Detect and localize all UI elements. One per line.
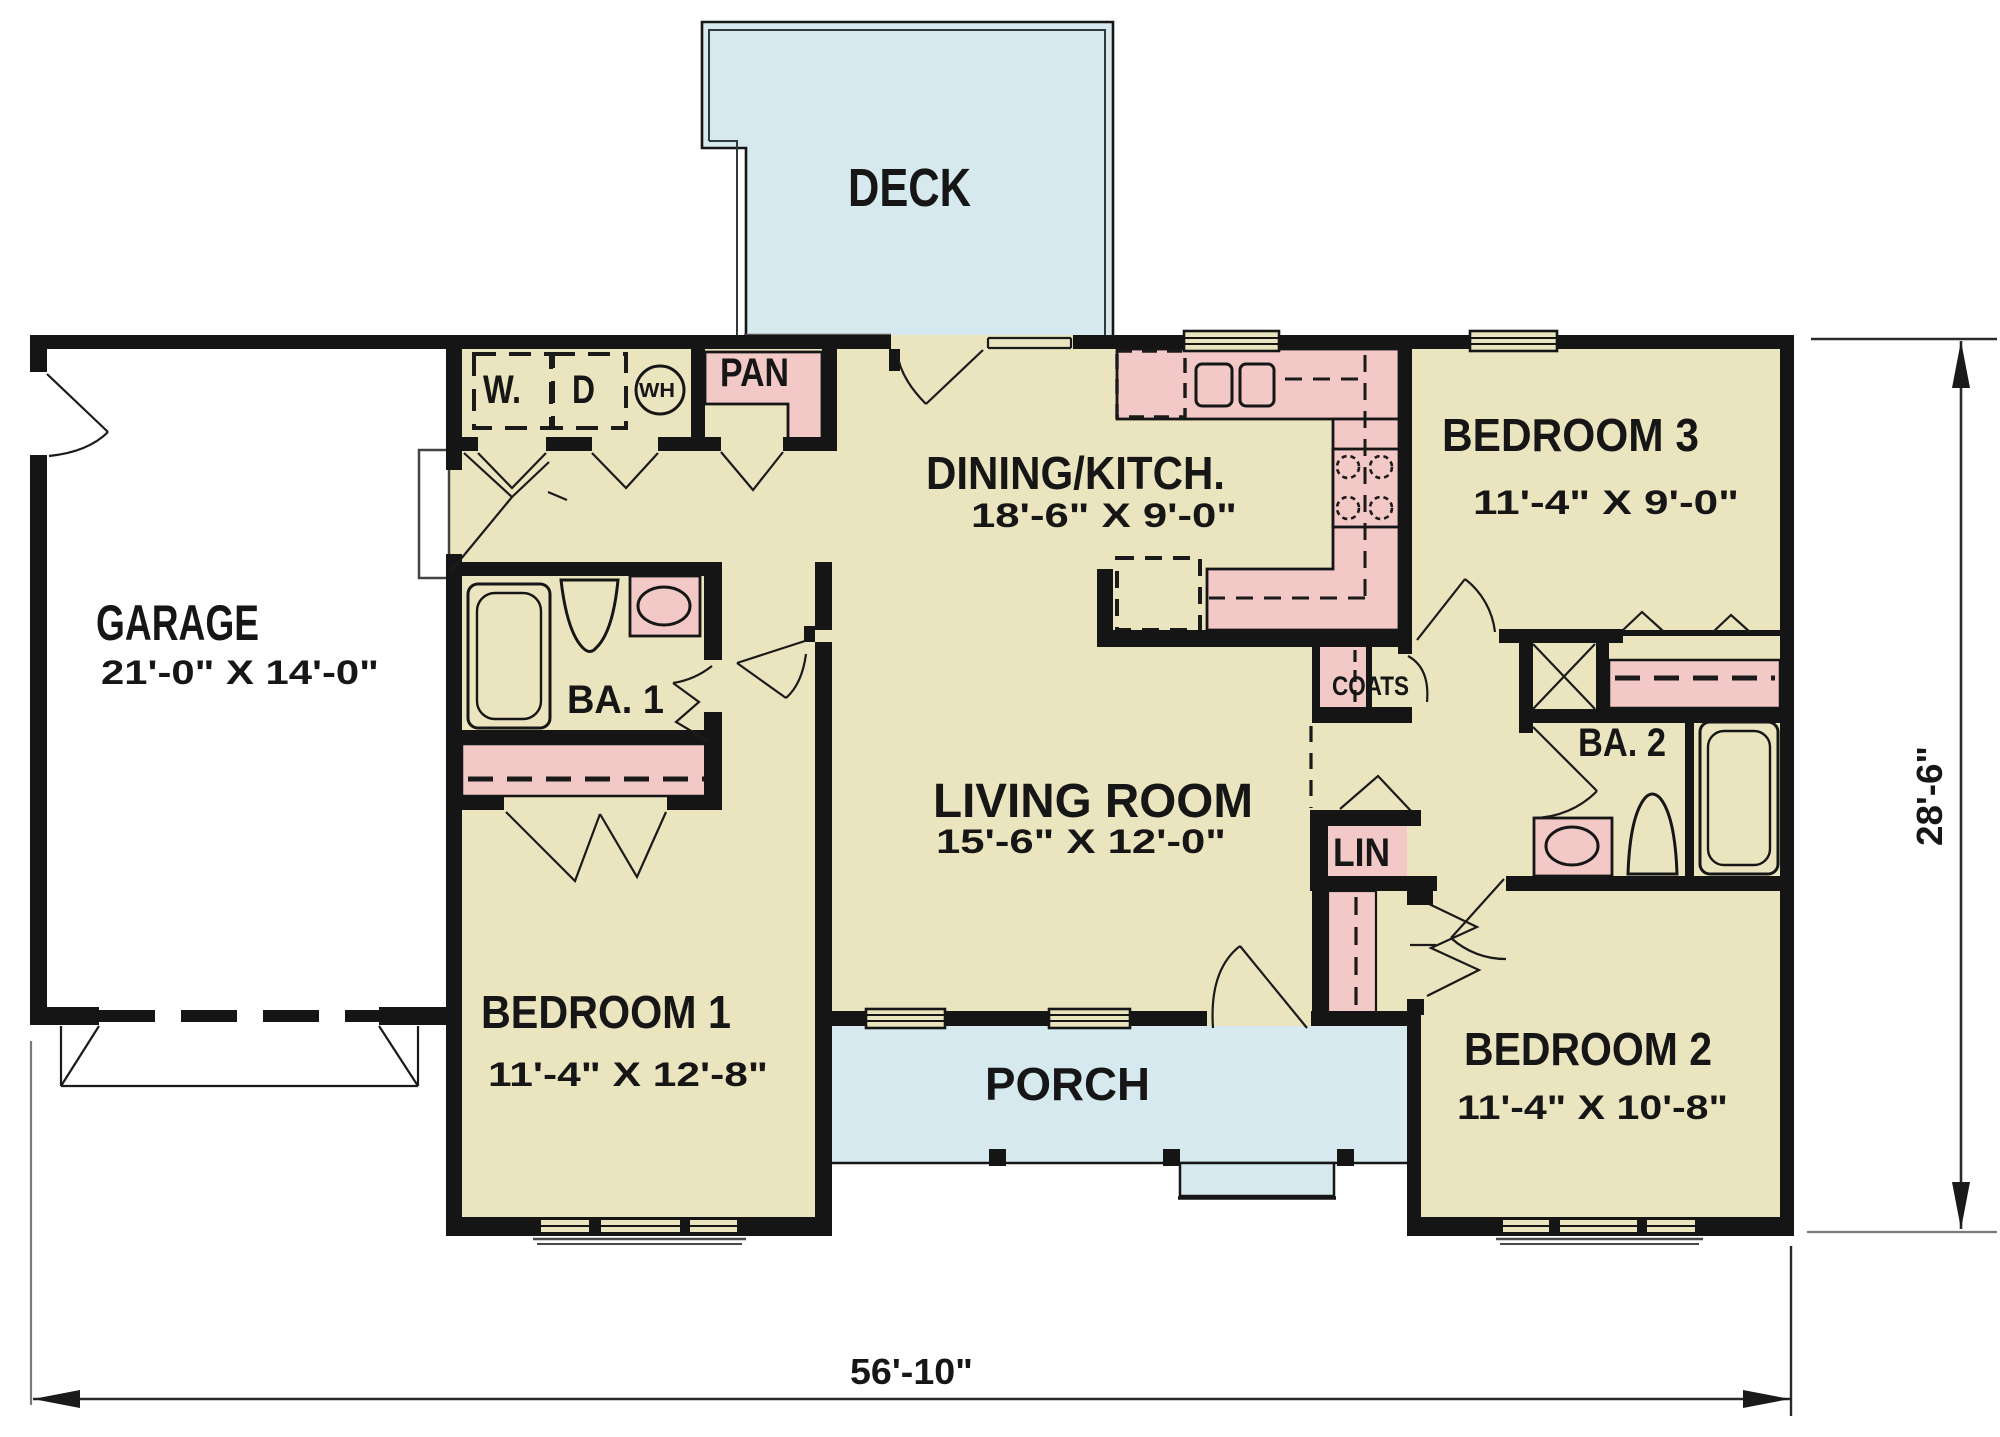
- svg-text:PAN: PAN: [720, 351, 789, 395]
- svg-text:15'-6" X 12'-0": 15'-6" X 12'-0": [936, 823, 1226, 861]
- svg-text:BA. 2: BA. 2: [1578, 721, 1666, 765]
- svg-text:WH: WH: [639, 380, 675, 402]
- svg-text:28'-6": 28'-6": [1909, 746, 1950, 846]
- svg-text:DINING/KITCH.: DINING/KITCH.: [926, 447, 1225, 499]
- svg-text:LIVING ROOM: LIVING ROOM: [933, 775, 1253, 828]
- svg-text:11'-4" X 9'-0": 11'-4" X 9'-0": [1473, 484, 1739, 522]
- svg-text:11'-4" X 10'-8": 11'-4" X 10'-8": [1457, 1089, 1728, 1127]
- svg-text:21'-0" X 14'-0": 21'-0" X 14'-0": [101, 654, 379, 692]
- svg-text:56'-10": 56'-10": [850, 1351, 973, 1392]
- svg-text:18'-6" X 9'-0": 18'-6" X 9'-0": [971, 497, 1237, 535]
- svg-text:11'-4" X 12'-8": 11'-4" X 12'-8": [488, 1056, 768, 1094]
- svg-text:BEDROOM 1: BEDROOM 1: [481, 986, 731, 1038]
- svg-text:LIN: LIN: [1333, 831, 1390, 875]
- svg-text:DECK: DECK: [848, 158, 971, 218]
- svg-text:COATS: COATS: [1332, 671, 1409, 701]
- svg-text:D: D: [572, 368, 595, 412]
- svg-text:GARAGE: GARAGE: [96, 595, 259, 651]
- svg-text:BEDROOM 2: BEDROOM 2: [1464, 1023, 1712, 1075]
- svg-text:BEDROOM 3: BEDROOM 3: [1442, 409, 1699, 461]
- svg-text:BA. 1: BA. 1: [567, 678, 664, 722]
- svg-text:W.: W.: [483, 368, 521, 412]
- svg-text:PORCH: PORCH: [985, 1058, 1150, 1110]
